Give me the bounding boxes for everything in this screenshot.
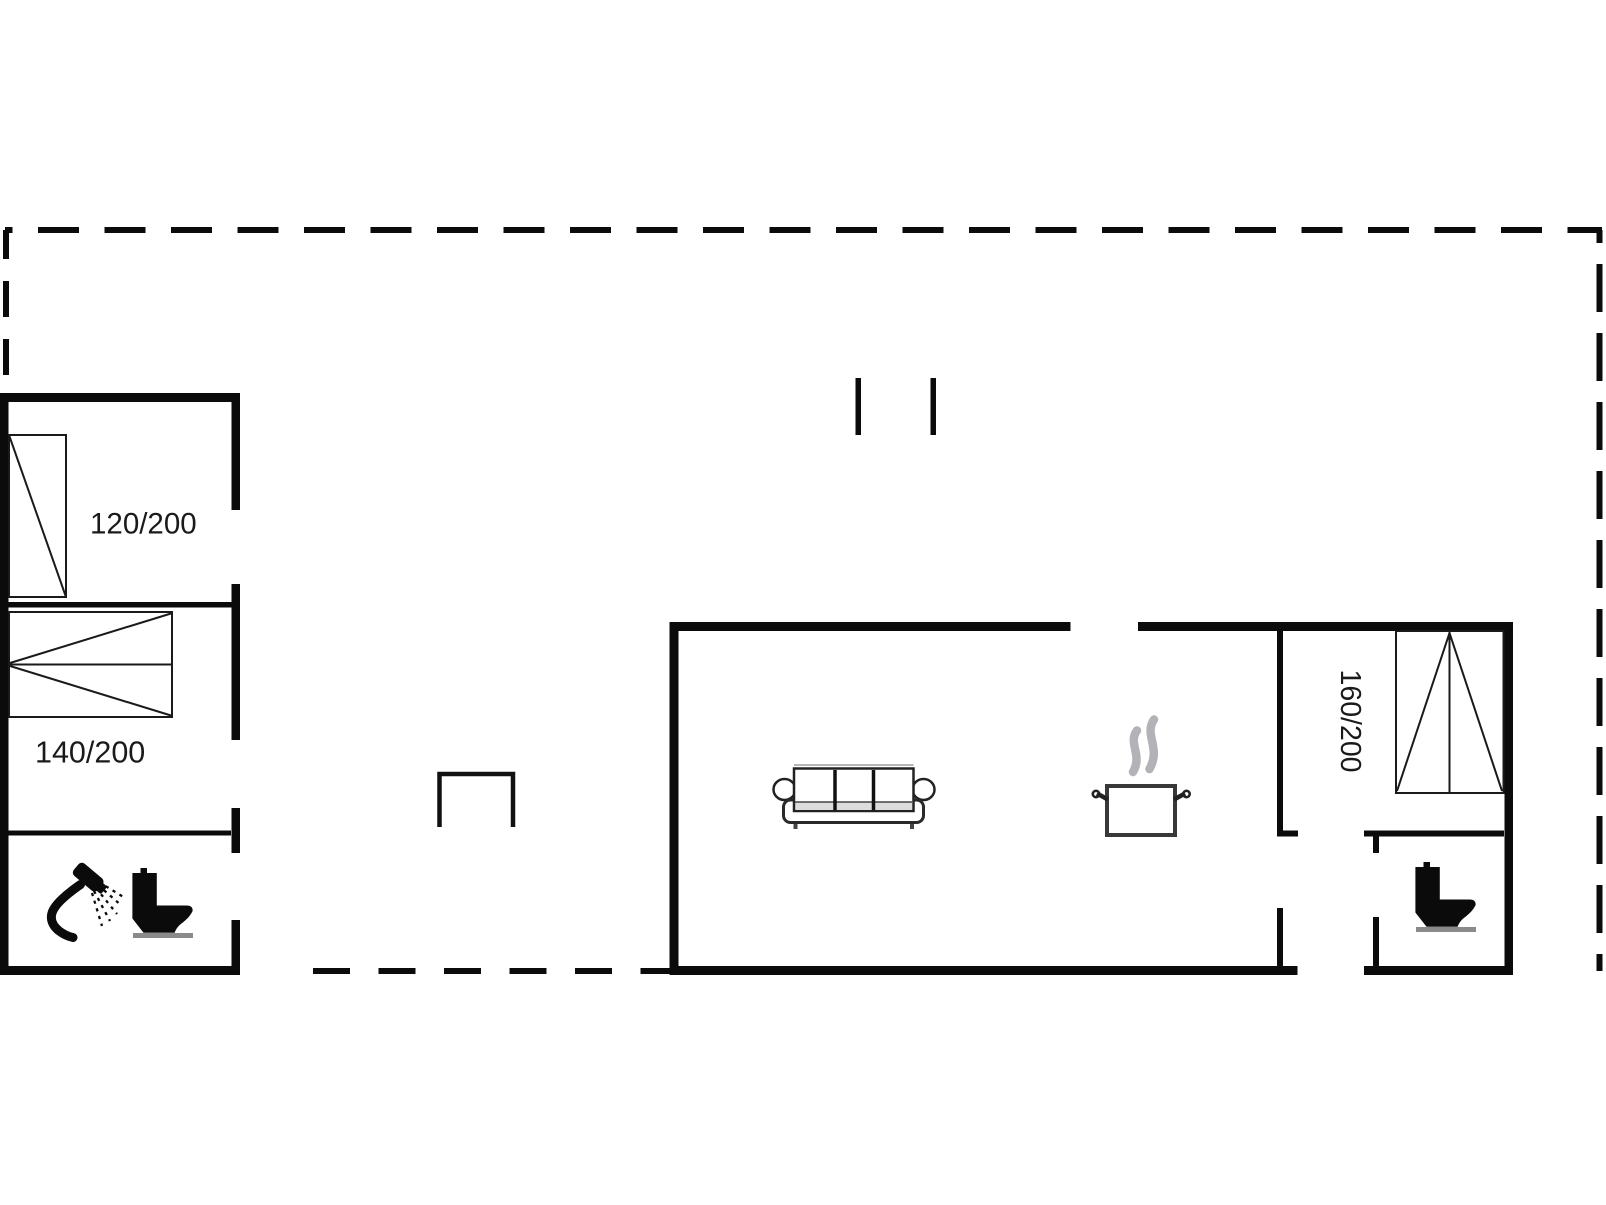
svg-text:140/200: 140/200: [35, 736, 145, 770]
svg-text:160/200: 160/200: [1334, 670, 1366, 773]
svg-text:120/200: 120/200: [90, 508, 197, 541]
